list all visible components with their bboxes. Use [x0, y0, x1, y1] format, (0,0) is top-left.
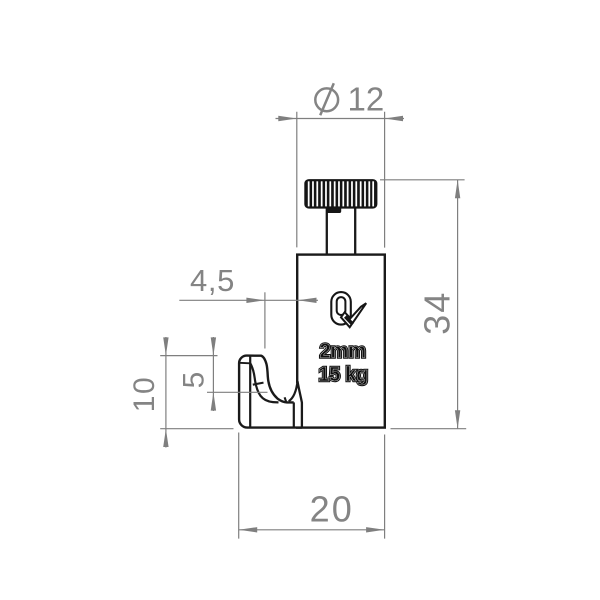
svg-text:12: 12: [348, 81, 385, 118]
svg-text:10: 10: [128, 376, 161, 412]
svg-text:20: 20: [310, 488, 354, 529]
svg-text:34: 34: [417, 291, 458, 335]
svg-text:2mm: 2mm: [319, 341, 366, 363]
svg-text:5: 5: [178, 372, 211, 389]
svg-text:15 kg: 15 kg: [318, 364, 368, 386]
svg-text:4,5: 4,5: [190, 263, 235, 298]
